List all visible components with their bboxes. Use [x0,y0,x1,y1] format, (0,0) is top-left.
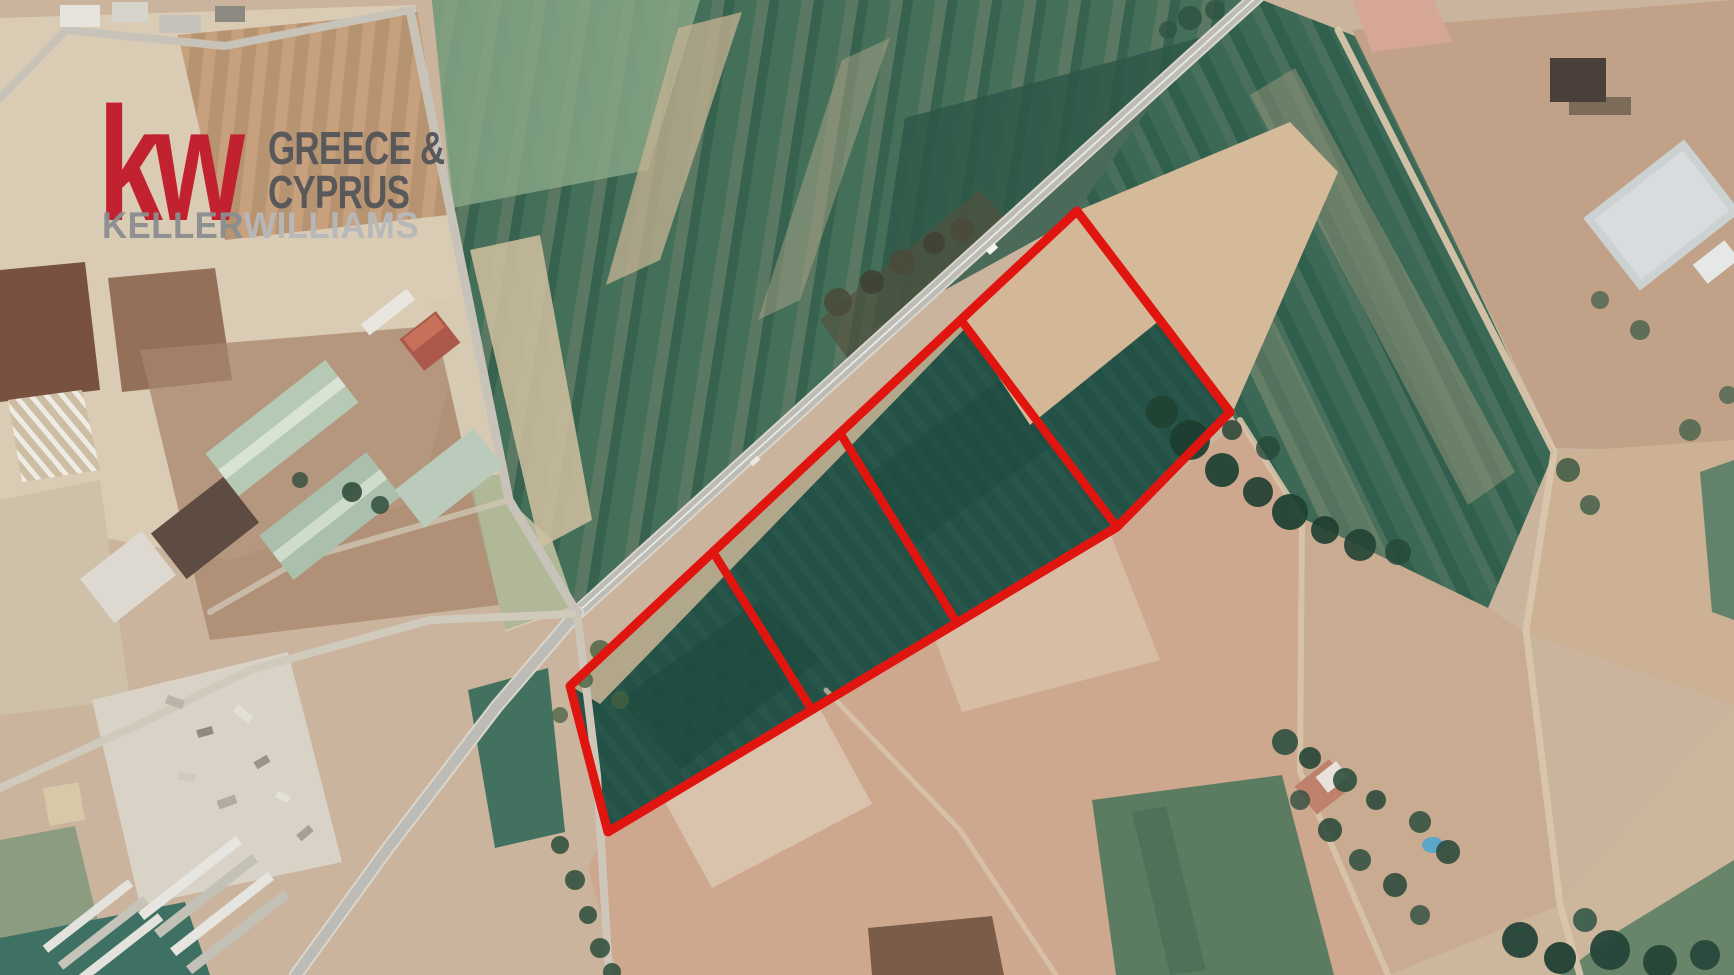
tree [1349,849,1371,871]
tree [1344,529,1376,561]
top-left-building-2 [112,2,148,22]
tree [590,938,610,958]
tree [1436,840,1460,864]
tree [1159,21,1177,39]
tree [1256,436,1280,460]
tree [1299,747,1321,769]
tree [1679,419,1701,441]
tree [1383,873,1407,897]
tree [1410,905,1430,925]
tree [551,836,569,854]
tree [1690,940,1720,970]
tree [1544,942,1576,974]
tree [1272,729,1298,755]
tree [1580,495,1600,515]
tree [1272,494,1308,530]
tree [342,482,362,502]
tree [1318,818,1342,842]
tree [1409,811,1431,833]
tree [1366,790,1386,810]
scrap-9 [152,745,165,752]
satellite-map: kw GREECE & CYPRUS KELLERWILLIAMS [0,0,1734,975]
tree [889,249,915,275]
tree [1590,930,1630,970]
tree [1178,6,1202,30]
tree [1311,516,1339,544]
fields-layer [0,0,1734,975]
tree [1502,922,1538,958]
tree [1146,396,1178,428]
tree [292,472,308,488]
tree [1556,458,1580,482]
field-dark-patch-1 [0,262,100,402]
tree [579,906,597,924]
top-left-building-1 [60,5,100,27]
tree [1243,477,1273,507]
tree [1333,768,1357,792]
top-right-barn [1550,58,1606,102]
tree [1573,908,1597,932]
tree [824,288,852,316]
tree [1630,320,1650,340]
top-left-building-4 [215,6,245,22]
tree [611,691,629,709]
tree [552,707,568,723]
top-left-building-3 [159,15,201,33]
tree [1290,790,1310,810]
tree [565,870,585,890]
satellite-scene [0,0,1734,975]
tree [1205,0,1225,20]
tree [1385,539,1411,565]
tree [860,270,884,294]
tree [1205,453,1239,487]
tree [950,218,974,242]
tree [923,232,945,254]
tree [371,496,389,514]
tree [1591,291,1609,309]
tan-building [43,782,85,826]
